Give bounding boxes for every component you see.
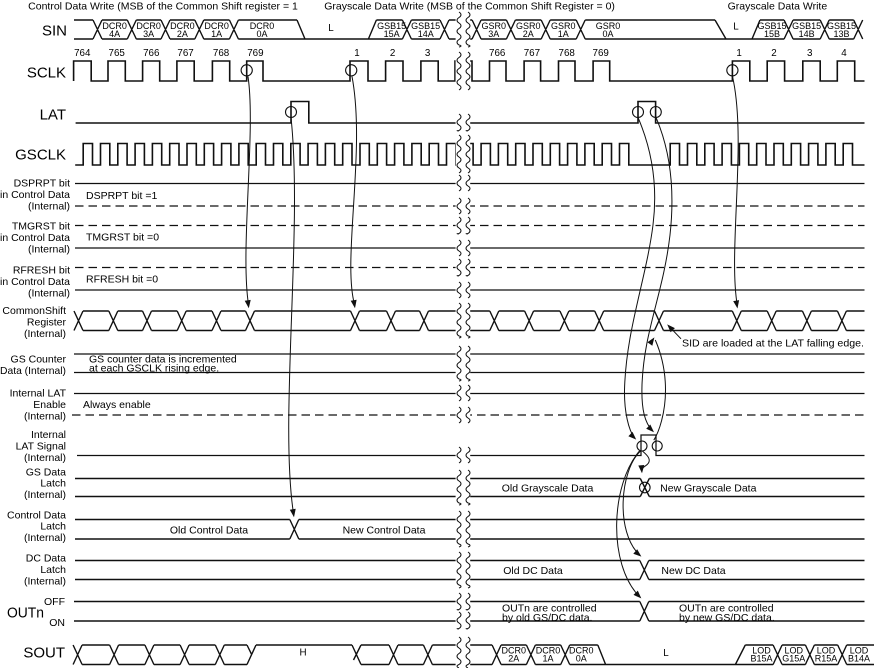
svg-text:Old Grayscale Data: Old Grayscale Data — [502, 482, 594, 494]
svg-text:766: 766 — [489, 48, 506, 59]
svg-text:766: 766 — [143, 48, 160, 59]
svg-text:3A: 3A — [143, 29, 154, 39]
svg-text:14A: 14A — [418, 29, 434, 39]
svg-text:in Control Data: in Control Data — [0, 232, 70, 244]
svg-text:G15A: G15A — [782, 653, 805, 663]
svg-text:Internal LAT: Internal LAT — [10, 387, 67, 399]
svg-text:Always enable: Always enable — [83, 399, 151, 411]
svg-text:Data (Internal): Data (Internal) — [0, 365, 66, 377]
svg-text:1: 1 — [736, 48, 741, 59]
svg-text:(Internal): (Internal) — [24, 532, 66, 544]
svg-text:LAT: LAT — [40, 107, 66, 124]
svg-text:(Internal): (Internal) — [24, 328, 66, 340]
svg-text:2A: 2A — [508, 653, 519, 663]
svg-text:TMGRST bit: TMGRST bit — [12, 220, 70, 232]
svg-text:768: 768 — [559, 48, 576, 59]
svg-text:GSCLK: GSCLK — [15, 147, 66, 164]
svg-text:Old Control Data: Old Control Data — [170, 525, 248, 537]
svg-text:Control Data Write (MSB of the: Control Data Write (MSB of the Common Sh… — [28, 1, 298, 13]
svg-text:1A: 1A — [211, 29, 222, 39]
svg-text:in Control Data: in Control Data — [0, 276, 70, 288]
svg-text:13B: 13B — [833, 29, 849, 39]
svg-text:(Internal): (Internal) — [24, 410, 66, 422]
svg-text:SOUT: SOUT — [23, 645, 65, 662]
svg-text:15B: 15B — [764, 29, 780, 39]
svg-text:4A: 4A — [109, 29, 120, 39]
svg-text:Enable: Enable — [33, 399, 66, 411]
svg-text:New DC Data: New DC Data — [661, 565, 725, 577]
svg-text:L: L — [328, 23, 334, 34]
svg-text:L: L — [663, 648, 669, 659]
svg-text:RFRESH bit =0: RFRESH bit =0 — [86, 273, 158, 285]
svg-text:in Control Data: in Control Data — [0, 189, 70, 201]
svg-text:1A: 1A — [542, 653, 553, 663]
svg-text:3: 3 — [425, 48, 431, 59]
svg-text:768: 768 — [213, 48, 230, 59]
svg-text:767: 767 — [524, 48, 540, 59]
svg-text:SCLK: SCLK — [27, 65, 66, 82]
svg-text:3A: 3A — [488, 29, 499, 39]
svg-text:0A: 0A — [576, 653, 587, 663]
svg-text:765: 765 — [109, 48, 126, 59]
svg-text:DSPRPT bit: DSPRPT bit — [14, 177, 70, 189]
svg-text:767: 767 — [177, 48, 193, 59]
svg-text:RFRESH bit: RFRESH bit — [13, 264, 70, 276]
svg-text:SID are loaded at the LAT fall: SID are loaded at the LAT falling edge. — [682, 337, 864, 349]
svg-text:ON: ON — [49, 617, 65, 629]
svg-text:Grayscale Data Write (MSB of t: Grayscale Data Write (MSB of the Common … — [324, 1, 615, 13]
svg-text:H: H — [299, 647, 306, 658]
svg-text:New Control Data: New Control Data — [343, 525, 426, 537]
svg-text:Latch: Latch — [40, 520, 66, 532]
svg-text:DSPRPT bit =1: DSPRPT bit =1 — [86, 190, 157, 202]
svg-text:2: 2 — [390, 48, 395, 59]
svg-text:Latch: Latch — [40, 477, 66, 489]
svg-text:2A: 2A — [523, 29, 534, 39]
svg-text:LAT Signal: LAT Signal — [16, 440, 66, 452]
svg-text:Latch: Latch — [40, 564, 66, 576]
svg-text:1: 1 — [354, 48, 359, 59]
svg-text:3: 3 — [807, 48, 813, 59]
svg-text:(Internal): (Internal) — [28, 243, 70, 255]
svg-text:0A: 0A — [602, 29, 613, 39]
svg-text:0A: 0A — [256, 29, 267, 39]
svg-text:764: 764 — [74, 48, 91, 59]
svg-text:769: 769 — [593, 48, 609, 59]
svg-text:(Internal): (Internal) — [24, 575, 66, 587]
svg-text:(Internal): (Internal) — [28, 287, 70, 299]
svg-text:by old GS/DC data.: by old GS/DC data. — [502, 612, 592, 624]
svg-text:B15A: B15A — [750, 653, 772, 663]
svg-text:New Grayscale Data: New Grayscale Data — [660, 482, 756, 494]
svg-text:B14A: B14A — [848, 653, 870, 663]
svg-text:(Internal): (Internal) — [24, 489, 66, 501]
svg-text:TMGRST bit =0: TMGRST bit =0 — [86, 231, 159, 243]
svg-text:2A: 2A — [177, 29, 188, 39]
svg-text:769: 769 — [247, 48, 263, 59]
svg-text:by new GS/DC data.: by new GS/DC data. — [679, 612, 775, 624]
svg-text:CommonShift: CommonShift — [2, 305, 66, 317]
svg-text:GS Counter: GS Counter — [11, 353, 67, 365]
svg-text:(Internal): (Internal) — [28, 200, 70, 212]
svg-text:14B: 14B — [799, 29, 815, 39]
svg-text:1A: 1A — [558, 29, 569, 39]
svg-text:SIN: SIN — [42, 23, 67, 40]
svg-text:R15A: R15A — [815, 653, 838, 663]
svg-text:Internal: Internal — [31, 429, 66, 441]
svg-text:L: L — [733, 22, 739, 33]
svg-text:15A: 15A — [384, 29, 400, 39]
svg-text:at each GSCLK rising edge.: at each GSCLK rising edge. — [89, 363, 219, 375]
svg-text:Register: Register — [27, 316, 67, 328]
svg-text:OFF: OFF — [44, 596, 65, 608]
svg-text:Old DC Data: Old DC Data — [503, 565, 563, 577]
svg-text:(Internal): (Internal) — [24, 452, 66, 464]
svg-text:4: 4 — [841, 48, 847, 59]
svg-text:Grayscale Data Write: Grayscale Data Write — [728, 1, 828, 13]
svg-text:OUTn: OUTn — [7, 605, 44, 622]
svg-text:2: 2 — [771, 48, 776, 59]
svg-text:DC Data: DC Data — [26, 552, 66, 564]
